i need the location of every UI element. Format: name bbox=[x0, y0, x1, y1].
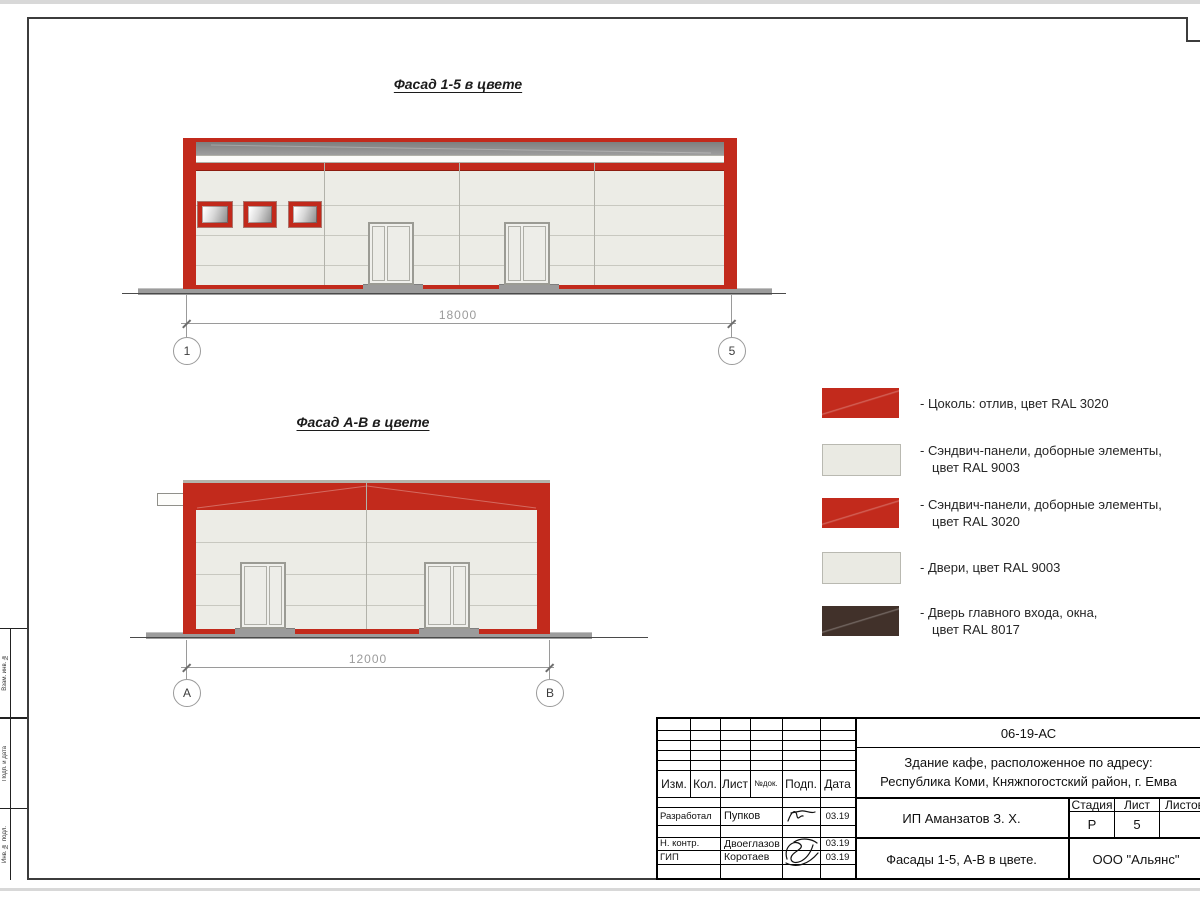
facade-a-b-title: Фасад А-В в цвете bbox=[223, 414, 503, 430]
legend-swatch-ral3020 bbox=[822, 388, 899, 418]
tb-col-podp: Подп. bbox=[782, 770, 820, 797]
extension-line bbox=[549, 640, 550, 679]
window bbox=[289, 202, 321, 227]
axis-label: А bbox=[183, 686, 191, 700]
axis-marker-1: 1 bbox=[173, 337, 201, 365]
facade-1-5-ground-line bbox=[122, 293, 786, 294]
side-stamp-cell: Взам. инв. № bbox=[0, 628, 10, 717]
axis-label: 1 bbox=[184, 344, 191, 358]
door-leaf bbox=[453, 566, 466, 625]
axis-marker-b: В bbox=[536, 679, 564, 707]
side-stamp-cell: Инв. № подл. bbox=[0, 809, 10, 880]
tb-listov-value bbox=[1160, 812, 1200, 837]
corner-pilaster bbox=[537, 483, 550, 634]
legend-swatch-ral9003 bbox=[822, 444, 901, 476]
axis-marker-a: А bbox=[173, 679, 201, 707]
signature-razrabotal bbox=[784, 807, 820, 825]
tb-company: ООО "Альянс" bbox=[1070, 839, 1200, 880]
door-leaf bbox=[244, 566, 267, 625]
tb-line bbox=[658, 740, 855, 741]
dimension-value: 18000 bbox=[358, 308, 558, 322]
tb-line bbox=[658, 760, 855, 761]
tb-object: Здание кафе, расположенное по адресу: Ре… bbox=[855, 749, 1200, 795]
legend-swatch-doors bbox=[822, 552, 901, 584]
tb-line bbox=[720, 719, 721, 880]
extension-line bbox=[186, 295, 187, 337]
tb-date: 03.19 bbox=[820, 850, 855, 864]
tb-line bbox=[658, 797, 855, 798]
axis-label: 5 bbox=[729, 344, 736, 358]
legend-swatch-ral3020-panels bbox=[822, 498, 899, 528]
tb-listov-label: Листов bbox=[1165, 798, 1200, 811]
door-leaf bbox=[523, 226, 546, 281]
side-stamp: Взам. инв. № Подп. и дата Инв. № подл. bbox=[0, 628, 27, 880]
tb-object-line2: Республика Коми, Княжпогостский район, г… bbox=[880, 772, 1177, 791]
page-bottom-edge bbox=[0, 888, 1200, 891]
extension-line bbox=[731, 295, 732, 337]
panel-joint bbox=[196, 265, 724, 266]
drawing-sheet: Фасад 1-5 в цвете 18000 1 5 bbox=[0, 0, 1200, 900]
tb-role: Разработал bbox=[660, 807, 718, 825]
door bbox=[424, 562, 470, 629]
tb-object-line1: Здание кафе, расположенное по адресу: bbox=[904, 753, 1152, 772]
side-stamp-cell: Подп. и дата bbox=[0, 719, 10, 808]
tb-role: Н. контр. bbox=[660, 837, 718, 850]
door bbox=[504, 222, 550, 285]
fascia-white-strip bbox=[196, 155, 724, 163]
frame-top bbox=[27, 17, 1200, 19]
axis-marker-5: 5 bbox=[718, 337, 746, 365]
axis-label: В bbox=[546, 686, 554, 700]
tb-sheet-name: Фасады 1-5, А-В в цвете. bbox=[855, 839, 1068, 880]
corner-pilaster bbox=[183, 483, 196, 634]
legend-label: - Двери, цвет RAL 9003 bbox=[920, 552, 1192, 582]
door bbox=[240, 562, 286, 629]
tb-col-ndok: №док. bbox=[750, 770, 782, 797]
tb-stage-label: Стадия bbox=[1070, 798, 1114, 811]
door-leaf bbox=[428, 566, 451, 625]
gutter-outlet bbox=[157, 493, 184, 506]
facade-a-b-ground-line bbox=[130, 637, 648, 638]
wall-panels bbox=[196, 171, 724, 285]
tb-line bbox=[658, 825, 855, 826]
door-leaf bbox=[387, 226, 410, 281]
facade-a-b-drawing bbox=[183, 480, 550, 634]
tb-stage-value: Р bbox=[1070, 812, 1114, 837]
tb-list-value: 5 bbox=[1115, 812, 1159, 837]
legend-label: - Сэндвич-панели, доборные элементы,цвет… bbox=[920, 498, 1192, 528]
title-block: Изм. Кол. Лист №док. Подп. Дата Разработ… bbox=[656, 717, 1200, 880]
window bbox=[198, 202, 232, 227]
legend-label: - Цоколь: отлив, цвет RAL 3020 bbox=[920, 388, 1192, 418]
tb-name: Пупков bbox=[724, 807, 780, 825]
tb-col-list: Лист bbox=[720, 770, 750, 797]
tb-line bbox=[855, 747, 1200, 748]
panel-joint bbox=[324, 163, 325, 285]
socle-red bbox=[196, 285, 724, 289]
roof-band-gray bbox=[196, 142, 724, 155]
door-leaf bbox=[372, 226, 385, 281]
tb-doc-number: 06-19-АС bbox=[855, 719, 1200, 747]
corner-pilaster bbox=[724, 142, 737, 289]
tb-name: Коротаев bbox=[724, 850, 780, 864]
tb-col-izm: Изм. bbox=[658, 770, 690, 797]
door-leaf bbox=[269, 566, 282, 625]
tb-name: Двоеглазов bbox=[724, 837, 780, 850]
tb-list-label: Лист bbox=[1115, 798, 1159, 811]
side-stamp-divider bbox=[10, 628, 11, 880]
panel-joint bbox=[459, 163, 460, 285]
dimension-value: 12000 bbox=[268, 652, 468, 666]
tb-line bbox=[658, 750, 855, 751]
dimension-line bbox=[181, 667, 554, 668]
tb-date: 03.19 bbox=[820, 807, 855, 825]
facade-1-5-title: Фасад 1-5 в цвете bbox=[318, 76, 598, 92]
panel-joint bbox=[366, 483, 367, 629]
tb-date: 03.19 bbox=[820, 837, 855, 850]
extension-line bbox=[186, 640, 187, 679]
frame-left bbox=[27, 17, 29, 880]
tb-line bbox=[658, 730, 855, 731]
dimension-line bbox=[181, 323, 736, 324]
legend-label: - Дверь главного входа, окна,цвет RAL 80… bbox=[920, 606, 1192, 636]
facade-1-5-drawing bbox=[183, 138, 737, 289]
tb-col-data: Дата bbox=[820, 770, 855, 797]
legend-label: - Сэндвич-панели, доборные элементы,цвет… bbox=[920, 444, 1192, 474]
upper-band-red bbox=[183, 163, 737, 171]
door-leaf bbox=[508, 226, 521, 281]
tb-line bbox=[658, 864, 855, 865]
window bbox=[244, 202, 276, 227]
legend-swatch-ral8017 bbox=[822, 606, 899, 636]
roof-band-highlight bbox=[196, 142, 724, 155]
page-top-edge bbox=[0, 0, 1200, 4]
tb-col-kol: Кол. bbox=[690, 770, 720, 797]
door bbox=[368, 222, 414, 285]
panel-joint bbox=[196, 235, 724, 236]
tb-client: ИП Аманзатов З. Х. bbox=[855, 799, 1068, 837]
frame-corner-box bbox=[1186, 17, 1200, 42]
corner-pilaster bbox=[183, 142, 196, 289]
tb-role: ГИП bbox=[660, 850, 718, 864]
panel-joint bbox=[594, 163, 595, 285]
signature-gip bbox=[780, 833, 822, 867]
